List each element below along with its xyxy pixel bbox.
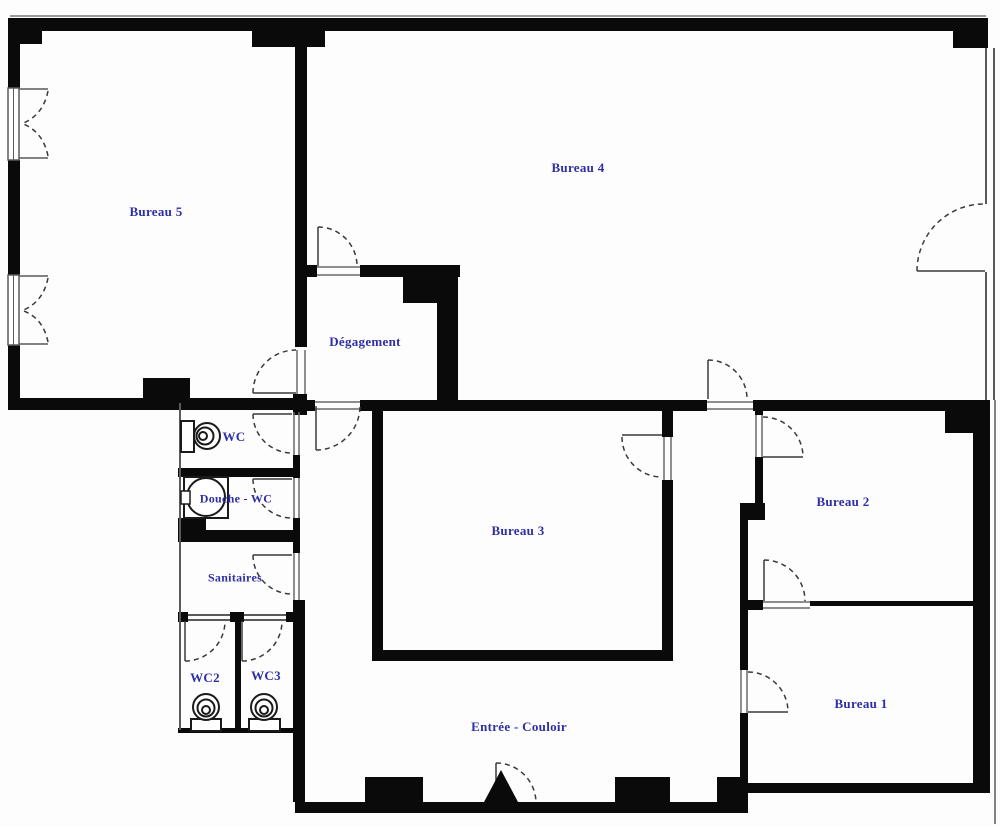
door-bureau1: [748, 672, 788, 712]
floor-plan: Bureau 5 Bureau 4 Dégagement WC Douche -…: [0, 0, 1000, 827]
walls: [8, 15, 990, 813]
room-label-bureau-5: Bureau 5: [129, 204, 182, 220]
door-degagement-bureau5: [253, 350, 296, 393]
room-label-bureau-2: Bureau 2: [816, 494, 869, 510]
room-label-wc: WC: [223, 429, 246, 445]
room-label-bureau-1: Bureau 1: [834, 696, 887, 712]
room-label-douche-wc: Douche - WC: [200, 492, 272, 507]
room-label-entree-couloir: Entrée - Couloir: [471, 719, 567, 735]
toilet-icon: [249, 694, 280, 731]
door-bureau4-facade: [917, 204, 985, 271]
toilet-icon: [191, 694, 221, 731]
window-icon: [8, 88, 48, 160]
fixtures: [181, 421, 518, 802]
door-bureau2-bureau1: [764, 560, 805, 601]
room-label-wc2: WC2: [190, 670, 220, 686]
window-icon: [8, 275, 48, 345]
room-label-bureau-3: Bureau 3: [491, 523, 544, 539]
room-label-bureau-4: Bureau 4: [551, 160, 604, 176]
door-bureau2: [763, 417, 803, 457]
room-label-sanitaires: Sanitaires: [208, 571, 262, 586]
door-bureau3: [622, 435, 662, 477]
door-degagement-corridor: [316, 406, 360, 450]
door-wc: [253, 414, 292, 453]
door-bureau4-vestibule: [708, 360, 747, 399]
room-label-degagement: Dégagement: [329, 334, 401, 350]
door-wc2: [185, 621, 225, 661]
room-label-wc3: WC3: [251, 668, 281, 684]
door-wc3: [242, 621, 282, 661]
toilet-icon: [181, 421, 220, 452]
entrance-arrow-icon: [484, 770, 518, 802]
door-bureau4-degagement: [318, 227, 357, 266]
